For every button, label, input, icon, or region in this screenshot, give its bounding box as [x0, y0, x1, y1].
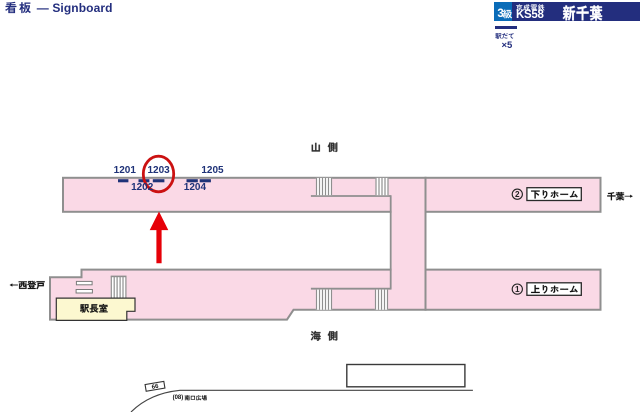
svg-text:1: 1: [515, 285, 520, 294]
svg-text:2: 2: [515, 190, 520, 199]
